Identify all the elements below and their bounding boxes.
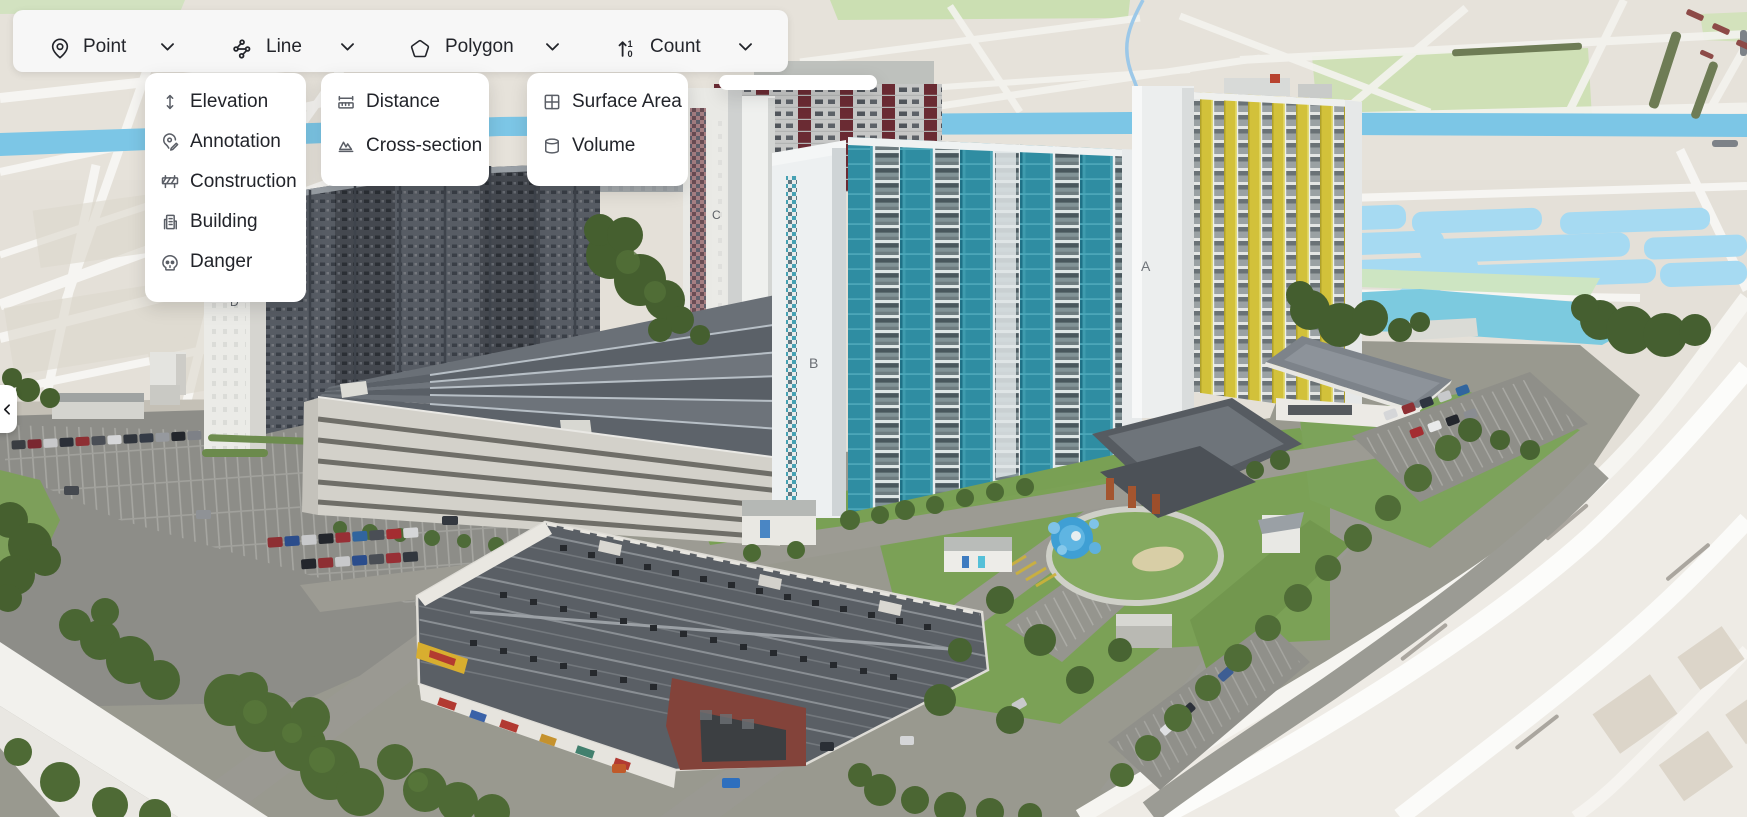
svg-text:A: A (1141, 258, 1151, 274)
svg-text:0: 0 (627, 49, 632, 59)
svg-text:1: 1 (627, 39, 632, 49)
svg-text:B: B (809, 355, 818, 371)
svg-text:C: C (712, 208, 721, 222)
